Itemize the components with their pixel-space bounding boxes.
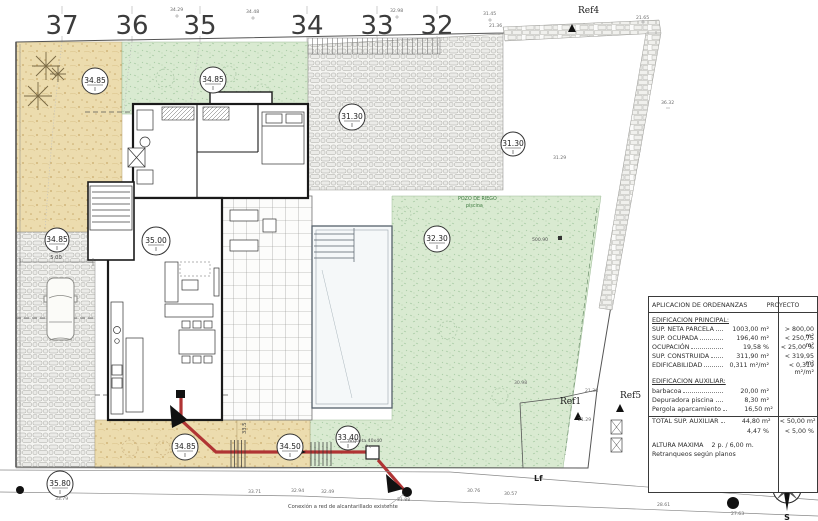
spot-level: 21.36	[489, 23, 502, 29]
svg-text:35.80: 35.80	[49, 479, 71, 488]
table-row: EDIFICABILIDAD0,311 m²/m²< 0,319 m²/m²	[649, 363, 817, 372]
survey-dot	[727, 497, 739, 509]
house-entry-block	[88, 182, 134, 260]
svg-text:31.30: 31.30	[502, 139, 524, 148]
contour-labels: 37 36 35 34 33 32	[45, 11, 453, 41]
spot-level: 30.98	[514, 380, 527, 386]
spot-level: 32.49	[321, 489, 334, 495]
swimming-pool	[312, 226, 392, 408]
contour-label-37: 37	[45, 11, 78, 41]
spot-level: 28.61	[657, 502, 670, 508]
sand-zone-bottom-1	[95, 420, 237, 468]
table-total-row: TOTAL SUP. AUXILIAR44,80 m²< 50,00 m²	[649, 416, 817, 429]
sewer-connection-point	[402, 487, 412, 497]
spot-level: 32.98	[390, 8, 403, 14]
dim-33-5: 33.5	[242, 422, 248, 434]
cobble-zone-topright	[308, 34, 503, 190]
table-header-col3: PGOU	[804, 303, 818, 309]
survey-dot	[16, 486, 24, 494]
table-row: Pergola aparcamiento16,50 m²	[649, 407, 817, 416]
spot-level: 21.38	[585, 388, 598, 394]
ref1-label: Ref1	[560, 397, 581, 407]
spot-level: 36.32	[661, 100, 674, 106]
stone-wall-right	[599, 33, 661, 310]
contour-label-33: 33	[360, 11, 393, 41]
elevation-marker: 34.85	[172, 434, 198, 460]
table-header-row: APLICACION DE ORDENANZAS PROYECTO PGOU	[649, 300, 817, 313]
svg-text:34.85: 34.85	[174, 442, 196, 451]
arqueta-note: Arqueta 40x40	[348, 438, 382, 444]
stone-wall-top	[503, 20, 661, 41]
elevation-marker: 34.85	[45, 228, 69, 252]
elevation-marker: 35.80	[47, 471, 73, 497]
svg-text:34.85: 34.85	[202, 75, 224, 84]
svg-text:32.30: 32.30	[426, 234, 448, 243]
table-section-auxiliar: EDIFICACION AUXILIAR:	[649, 377, 817, 388]
spot-level: 21.29	[578, 417, 591, 423]
table-retranqueos-row: Retranqueos según planos	[649, 452, 817, 461]
dining-table-icon	[179, 321, 215, 363]
lf-label: Lf	[534, 474, 543, 483]
spot-level: 30.76	[467, 488, 480, 494]
table-header-col1: APLICACION DE ORDENANZAS	[652, 303, 747, 309]
svg-text:34.85: 34.85	[46, 235, 68, 244]
ref5-label: Ref5	[620, 391, 641, 401]
pozo-note-line1: POZO DE RIEGO	[458, 196, 497, 202]
spot-level: 33.79	[55, 496, 68, 502]
spot-level: 31.88	[397, 497, 410, 503]
spot-level: 27.63	[731, 511, 744, 517]
ordenanzas-table: APLICACION DE ORDENANZAS PROYECTO PGOU E…	[648, 296, 818, 493]
site-plan-sheet: 37 36 35 34 33 32	[0, 0, 818, 521]
table-header-col2: PROYECTO	[755, 303, 804, 309]
spot-level: 30.57	[504, 491, 517, 497]
elevation-marker: 34.50	[277, 434, 303, 460]
dim-5-00: 5.00	[50, 255, 62, 261]
elevation-marker: 34.85	[200, 67, 226, 93]
shaft-box	[128, 148, 145, 167]
elevation-marker: 31.30	[501, 132, 525, 156]
elevation-marker: 32.30	[424, 226, 450, 252]
spot-level: 32.94	[291, 488, 304, 494]
svg-text:34.50: 34.50	[279, 442, 301, 451]
contour-label-32: 32	[420, 11, 453, 41]
contour-label-35: 35	[183, 11, 216, 41]
table-total-pct-row: 4,47 %< 5,00 %	[649, 429, 817, 438]
elevation-marker: 31.30	[339, 104, 365, 130]
spot-level: 33.71	[248, 489, 261, 495]
ref4-label: Ref4	[578, 6, 599, 16]
driveway-cobble	[16, 232, 95, 468]
compass-south-label: S	[784, 513, 790, 521]
spot-level: 31.29	[553, 155, 566, 161]
ref5-marker-icon	[616, 404, 624, 412]
svg-text:31.30: 31.30	[341, 112, 363, 121]
bed-icon	[262, 112, 304, 164]
contour-label-36: 36	[115, 11, 148, 41]
elevation-marker: 34.85	[82, 68, 108, 94]
arqueta-box	[366, 446, 379, 459]
svg-text:34.85: 34.85	[84, 76, 106, 85]
elevation-marker: 33.40	[336, 426, 360, 450]
elevation-marker: 35.00	[142, 227, 170, 255]
spot-level: 34.48	[246, 9, 259, 15]
pozo-note-line2: piscina	[466, 203, 483, 209]
spot-level: 34.29	[170, 7, 183, 13]
spot-level: 21.65	[636, 15, 649, 21]
spot-level: 31.45	[483, 11, 496, 17]
svg-text:35.00: 35.00	[145, 236, 167, 245]
car-icon	[44, 278, 77, 340]
sewer-note: Conexión a red de alcantarillado existen…	[288, 503, 398, 510]
level-500-note: 500.90	[532, 237, 548, 243]
